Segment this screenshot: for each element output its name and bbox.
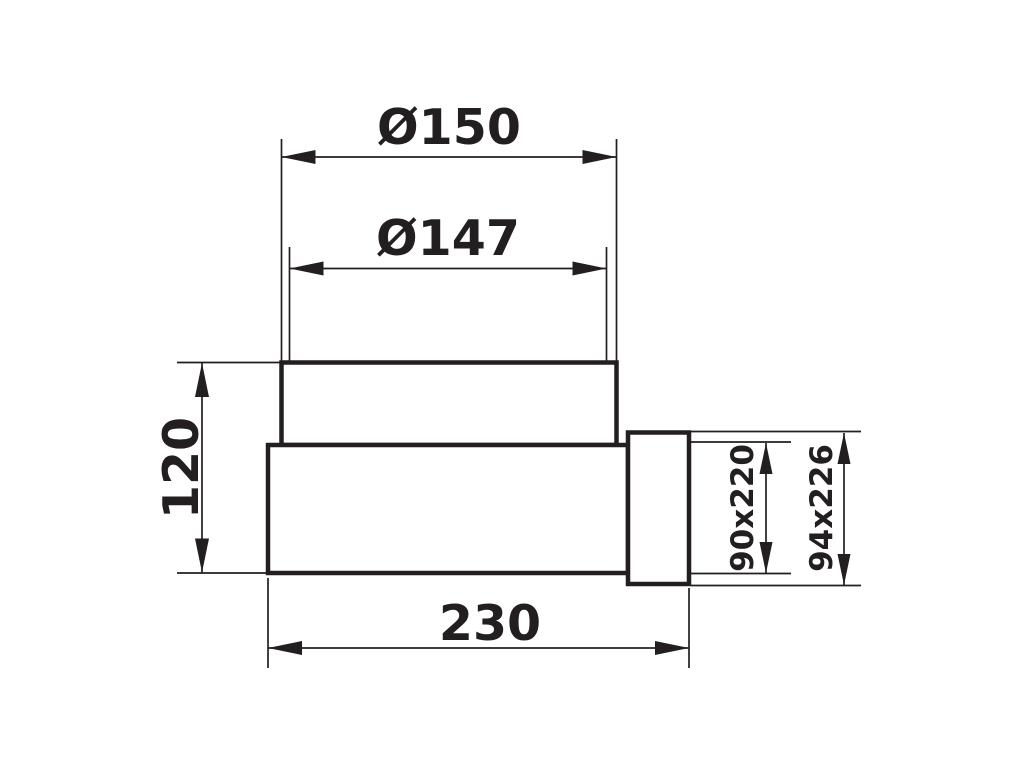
arrowhead-left (268, 641, 302, 655)
arrowhead-top (760, 443, 773, 474)
dim-label-outer-diameter: Ø150 (377, 99, 521, 156)
arrowhead-left (282, 150, 316, 164)
dim-duct-outer: 94x226 (689, 432, 861, 586)
dim-label-length: 230 (439, 595, 541, 652)
arrowhead-right (655, 641, 689, 655)
arrowhead-bottom (195, 539, 209, 573)
dim-height: 120 (153, 363, 282, 574)
dim-label-duct-inner: 90x220 (725, 444, 761, 572)
adapter-outline (268, 363, 689, 585)
dim-duct-inner: 90x220 (689, 442, 791, 574)
drawing-canvas: Ø150 Ø147 120 230 (0, 0, 1024, 768)
technical-drawing: Ø150 Ø147 120 230 (0, 0, 1024, 768)
arrowhead-right (583, 150, 617, 164)
arrowhead-top (195, 363, 209, 397)
dim-label-duct-outer: 94x226 (804, 444, 840, 572)
collar-outline (282, 363, 617, 446)
arrowhead-right (573, 262, 607, 276)
arrowhead-bottom (760, 542, 773, 573)
dim-length: 230 (268, 578, 689, 668)
body-outline (268, 445, 628, 573)
dim-label-inner-diameter: Ø147 (376, 210, 520, 267)
flange-outline (628, 433, 689, 585)
dim-inner-diameter: Ø147 (290, 210, 607, 362)
arrowhead-left (290, 262, 324, 276)
dim-label-height: 120 (153, 417, 210, 519)
